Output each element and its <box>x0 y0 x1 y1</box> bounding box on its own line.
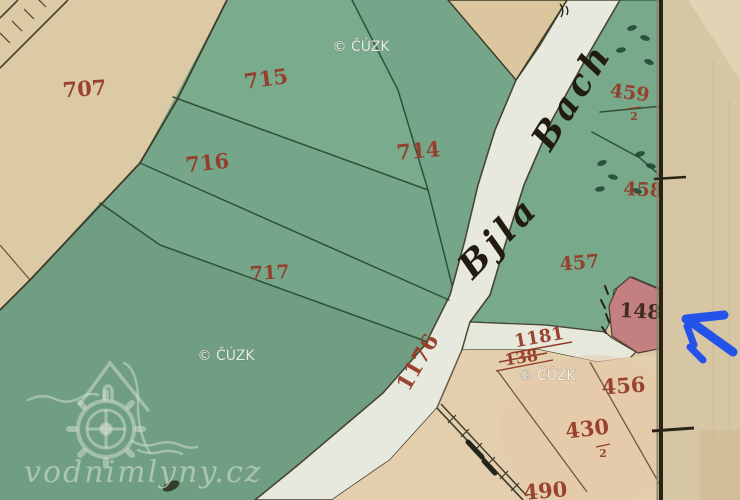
label-716: 716 <box>184 148 230 177</box>
sheet-border-line <box>659 0 663 500</box>
historical-cadastral-map-viewport: 707 715 716 714 717 459 2 458 457 148 11… <box>0 0 740 500</box>
sheet-edge-shadow <box>657 0 659 500</box>
label-714: 714 <box>395 136 441 165</box>
label-430-sub: 2 <box>599 447 607 460</box>
label-148: 148 <box>619 298 662 324</box>
label-430: 430 <box>564 413 611 443</box>
label-717: 717 <box>249 261 290 285</box>
label-457: 457 <box>559 250 600 275</box>
label-707: 707 <box>62 75 107 103</box>
map-canvas: 707 715 716 714 717 459 2 458 457 148 11… <box>0 0 740 500</box>
cuzk-watermark-1: © ČÚZK <box>333 37 391 55</box>
label-459-sub: 2 <box>630 110 638 123</box>
label-490: 490 <box>522 476 568 500</box>
vodnimlyny-logo-text: vodnimlyny.cz <box>24 455 263 490</box>
cuzk-watermark-3: © ČÚZK <box>519 366 577 384</box>
cuzk-watermark-2: © ČÚZK <box>198 346 256 364</box>
map-sheet-margin <box>663 0 740 500</box>
label-456: 456 <box>601 372 646 400</box>
